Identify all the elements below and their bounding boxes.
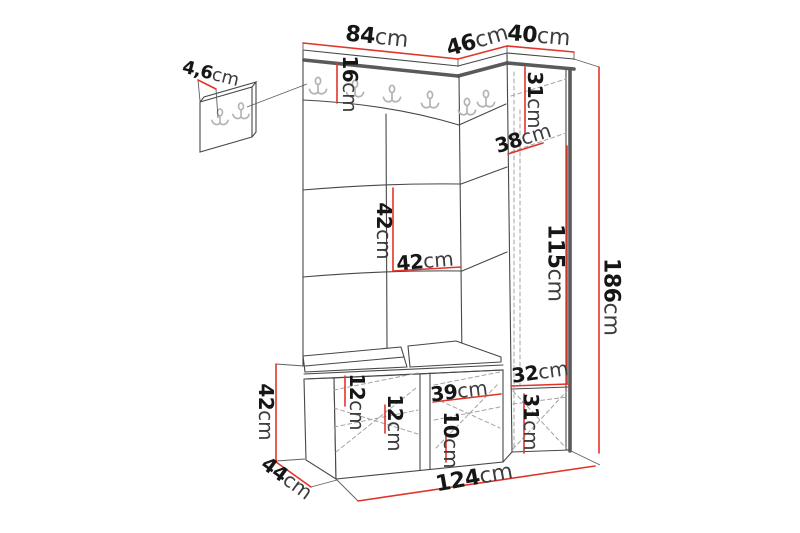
coat-hook-icon <box>383 85 400 101</box>
dimension-label-bench-right-shelf: 10cm <box>439 411 463 468</box>
corner-junction-edge <box>459 75 462 362</box>
seat-cushion-left <box>303 347 407 372</box>
cabinet-left-edge <box>507 53 512 452</box>
floor-diagonal-right <box>569 450 600 465</box>
furniture-dimension-diagram: 84cm 46cm 40cm 4,6cm 16cm 31cm 38cm 42cm… <box>0 0 800 533</box>
coat-hook-icon <box>477 90 494 106</box>
extension-tick <box>276 364 304 366</box>
wall-panel-side-edge <box>252 82 256 137</box>
cabinet-shelf-edge <box>512 387 568 389</box>
wall-panel-front <box>200 87 252 152</box>
dimension-label-panel-tile-width: 42cm <box>395 247 454 276</box>
cabinet-top-thick <box>507 63 574 69</box>
diagram-canvas: 84cm 46cm 40cm 4,6cm 16cm 31cm 38cm 42cm… <box>0 0 800 533</box>
dimension-label-cabinet-shelf-depth: 38cm <box>492 118 554 158</box>
rail-top-main <box>304 60 458 76</box>
dimension-label-corner-width: 46cm <box>444 20 512 61</box>
dimension-label-bench-height: 42cm <box>254 383 278 440</box>
panel-row-line-1 <box>303 184 461 190</box>
dimension-label-panel-tile-height: 42cm <box>372 202 396 259</box>
extension-tick <box>198 80 200 101</box>
dimension-label-total-height: 186cm <box>598 258 623 336</box>
bench-left-side <box>304 378 336 479</box>
wardrobe-body <box>303 50 507 366</box>
extension-tick <box>574 59 599 67</box>
hook-rail-bottom <box>303 100 459 125</box>
dimension-label-bench-left-shelf: 12cm <box>383 394 407 451</box>
panel-row-line-1-corner <box>461 167 507 184</box>
floor-diagonal-left <box>336 479 358 501</box>
coat-hook-icon <box>421 91 438 107</box>
dimension-label-bench-top-thickness: 12cm <box>345 373 369 430</box>
coat-hook-icon <box>309 77 326 93</box>
coat-hook-icon <box>458 98 475 114</box>
dimension-label-cabinet-mid-height: 115cm <box>542 224 567 302</box>
rail-top-corner <box>458 63 507 76</box>
dimension-label-hook-rail-height: 16cm <box>338 55 362 112</box>
dimension-label-cabinet-bottom-height: 31cm <box>519 393 543 450</box>
dimension-label-cabinet-bottom-width: 32cm <box>510 356 570 388</box>
cabinet-top-edge <box>507 53 574 59</box>
seat-cushion-right <box>408 341 501 367</box>
panel-row-line-2-corner <box>462 252 507 271</box>
